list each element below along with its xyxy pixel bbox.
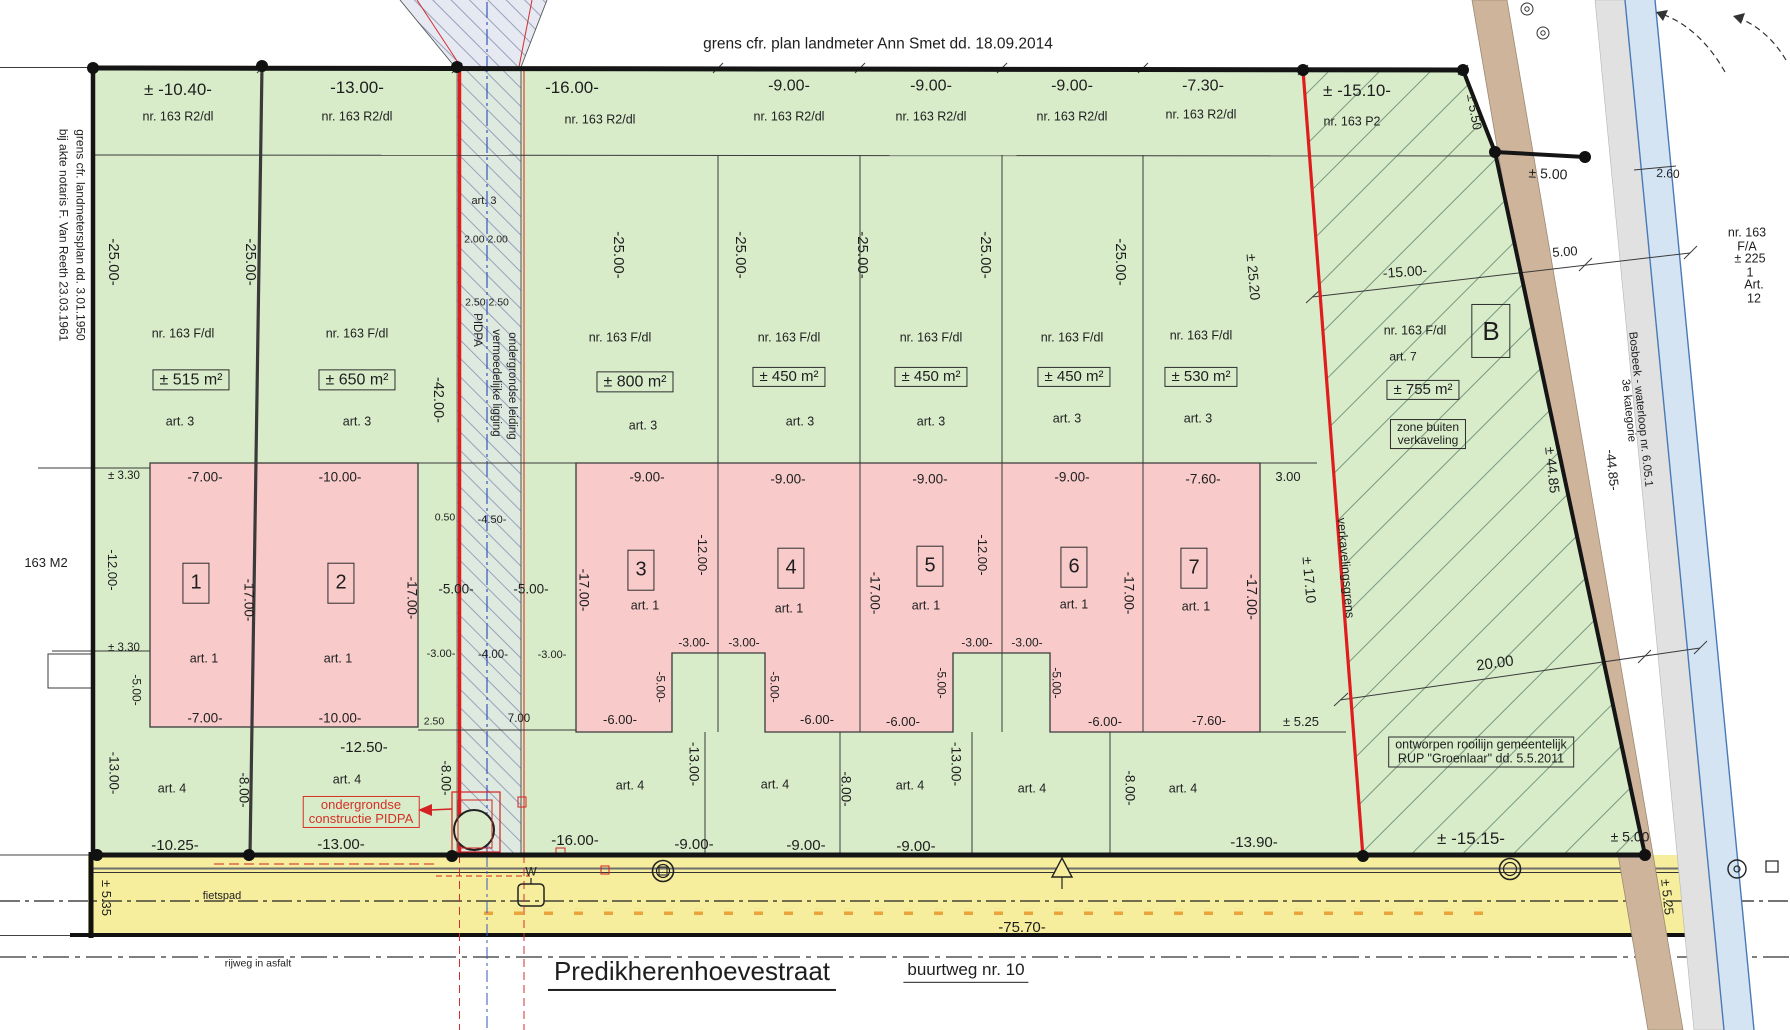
dim: -6.00-: [800, 713, 834, 727]
zone-label: art. 3: [629, 419, 658, 433]
zone-label: art. 1: [631, 599, 660, 613]
dim: -12.00-: [975, 534, 989, 575]
dim: -8.00-: [236, 772, 251, 807]
pipeline-label: PIDPA: [471, 313, 483, 347]
lot-number-7: 7: [1180, 548, 1207, 589]
dim-depth: ± 25.20: [1243, 253, 1262, 301]
parcel-label: nr. 163 R2/dl: [1166, 108, 1237, 122]
dim-depth: -25.00-: [977, 231, 993, 279]
water-valve-label: W: [525, 866, 536, 879]
dim: ± 5.50: [1464, 93, 1484, 131]
lot-number-2: 2: [327, 563, 354, 604]
dim: -13.00-: [106, 752, 121, 795]
dim: 2.50: [424, 716, 444, 727]
dim-depth: -25.00-: [854, 231, 870, 279]
pidpa-construction-note: ondergrondse constructie PIDPA: [303, 796, 420, 828]
road-surface-label: rijweg in asfalt: [225, 958, 292, 969]
parcel-label: nr. 163 F/dl: [758, 331, 821, 345]
dim-build-lot6: -9.00-: [1054, 471, 1089, 486]
zone-label: art. 7: [1389, 351, 1416, 364]
plan-canvas: grens cfr. plan landmeter Ann Smet dd. 1…: [0, 0, 1790, 1030]
dim: -9.00-: [674, 837, 713, 853]
dim: -12.50-: [340, 740, 388, 756]
zone-label: art. 4: [1169, 782, 1198, 796]
parcel-label: nr. 163 F/dl: [1170, 329, 1233, 343]
parcel-label: nr. 163 R2/dl: [896, 110, 967, 124]
dim: -13.00-: [317, 837, 365, 853]
dim: -3.00-: [538, 650, 567, 662]
zone-label: art. 1: [324, 652, 353, 666]
dim: -13.00-: [948, 742, 963, 786]
dim: -13.00-: [686, 742, 701, 786]
parcel-label: nr. 163 R2/dl: [565, 113, 636, 127]
parcel-label: nr. 163 F/dl: [900, 331, 963, 345]
parcel-label: nr. 163 F/dl: [152, 327, 215, 341]
dim-front-lot1: ± -10.40-: [144, 81, 212, 99]
dim-depth: -25.00-: [105, 238, 121, 286]
dim-front-p2: ± -15.10-: [1323, 82, 1391, 100]
parcel-label: nr. 163 F/A: [1726, 227, 1769, 254]
lot-number-b: B: [1471, 304, 1510, 358]
dim: 20.00: [1475, 653, 1514, 674]
dim-build-lot2: -10.00-: [319, 471, 362, 486]
dim: 3.00: [1275, 470, 1300, 484]
dim: ± 5.25: [1658, 878, 1676, 915]
area-lot6: ± 450 m²: [1037, 367, 1110, 387]
zone-label: art. 4: [158, 782, 187, 796]
dim: -17.00-: [576, 569, 591, 612]
dim: -3.00-: [678, 637, 709, 650]
zone-label: art. 3: [471, 196, 496, 208]
bike-path-label: fietspad: [203, 891, 242, 903]
dim-build-lot5: -9.00-: [912, 473, 947, 488]
dim-front-lot2: -13.00-: [330, 79, 384, 97]
dim: -5.00-: [1050, 667, 1063, 698]
dim-road-length: -75.70-: [998, 920, 1046, 936]
dim: -3.00-: [427, 649, 456, 661]
street-byway: buurtweg nr. 10: [903, 961, 1028, 983]
dim: ± 44.85: [1542, 446, 1562, 494]
labels-layer: grens cfr. plan landmeter Ann Smet dd. 1…: [0, 0, 1790, 1030]
dim-build-lot3: -9.00-: [629, 471, 664, 486]
zone-label: Art. 12: [1736, 279, 1772, 306]
dim: -17.00-: [1242, 574, 1258, 620]
lot-number-6: 6: [1060, 547, 1087, 588]
dim: -5.00-: [935, 667, 948, 698]
parcel-label: nr. 163 F/dl: [589, 331, 652, 345]
dim: -5.00-: [513, 583, 548, 598]
lot-number-1: 1: [182, 563, 209, 604]
dim: -7.00-: [187, 712, 222, 727]
zone-label: art. 1: [190, 652, 219, 666]
dim: 7.00: [508, 713, 530, 725]
dim: ± 3.30: [108, 642, 140, 654]
boundary-note-left: grens cfr. landmetersplan dd. 3.01.1950: [74, 129, 87, 340]
dim: ± 5.25: [1283, 715, 1319, 729]
dim: ± -15.15-: [1437, 830, 1505, 848]
dim: ± 3.30: [108, 470, 140, 482]
dim: 2.00 2.00: [464, 234, 508, 245]
dim: -6.00-: [1088, 715, 1122, 729]
zone-label: art. 3: [786, 415, 815, 429]
dim: -6.00-: [886, 715, 920, 729]
dim: -17.00-: [867, 572, 882, 615]
parcel-label: nr. 163 R2/dl: [143, 110, 214, 124]
dim-build-lot1: -7.00-: [187, 471, 222, 486]
parcel-label-neighbour: 163 M2: [24, 556, 67, 570]
street-name: Predikherenhoevestraat: [548, 957, 836, 991]
zone-outside-note: zone buiten verkaveling: [1390, 419, 1466, 449]
rooilijn-note: ontworpen rooilijn gemeentelijk RUP "Gro…: [1388, 737, 1574, 768]
dim: -9.00-: [896, 839, 935, 855]
dim: -8.00-: [838, 771, 853, 806]
parcel-label: nr. 163 R2/dl: [1037, 110, 1108, 124]
subdivision-boundary-label: verkavelingsgrens: [1334, 517, 1356, 619]
zone-label: art. 4: [333, 773, 362, 787]
area-label: ± 225 1: [1730, 253, 1770, 280]
dim-depth: -25.00-: [610, 231, 626, 279]
dim: -10.00-: [319, 712, 362, 727]
zone-label: art. 3: [1053, 412, 1082, 426]
zone-label: art. 1: [912, 599, 941, 613]
dim: ± 17.10: [1299, 556, 1318, 604]
pipeline-label: vermoedelijke ligging: [490, 329, 502, 436]
area-lot1: ± 515 m²: [152, 369, 229, 390]
dim: -4.50-: [478, 515, 507, 527]
dim-depth: -25.00-: [242, 238, 258, 286]
dim-build-lot4: -9.00-: [770, 473, 805, 488]
dim: -3.00-: [728, 637, 759, 650]
dim: -3.00-: [1011, 637, 1042, 650]
zone-label: art. 1: [1060, 598, 1089, 612]
zone-label: art. 3: [343, 415, 372, 429]
dim: -7.60-: [1192, 714, 1226, 728]
parcel-label: nr. 163 P2: [1324, 115, 1381, 129]
area-lot2: ± 650 m²: [318, 369, 395, 390]
lot-number-4: 4: [777, 548, 804, 589]
area-lot4: ± 450 m²: [752, 367, 825, 387]
dim: -17.00-: [404, 577, 419, 620]
dim-front-lot3: -16.00-: [545, 79, 599, 97]
area-lot-b: ± 755 m²: [1386, 380, 1459, 400]
dim-depth: -25.00-: [1112, 238, 1128, 286]
dim-front-lot5: -9.00-: [910, 77, 952, 94]
dim: -3.00-: [961, 637, 992, 650]
dim: 0.50: [435, 512, 455, 523]
dim: -13.90-: [1230, 835, 1278, 851]
dim: -8.00-: [1122, 770, 1137, 805]
dim: -8.00-: [438, 760, 453, 795]
dim-front-lot6: -9.00-: [1051, 77, 1093, 94]
parcel-label: nr. 163 R2/dl: [322, 110, 393, 124]
dim: 2.50 2.50: [465, 297, 509, 308]
lot-number-5: 5: [916, 546, 943, 587]
dim: -5.00-: [768, 671, 781, 702]
dim-depth: -25.00-: [732, 231, 748, 279]
area-lot5: ± 450 m²: [894, 367, 967, 387]
dim: -16.00-: [551, 833, 599, 849]
zone-label: art. 3: [917, 415, 946, 429]
zone-label: art. 4: [1018, 782, 1047, 796]
parcel-label: nr. 163 F/dl: [1384, 324, 1447, 338]
parcel-label: nr. 163 R2/dl: [754, 110, 825, 124]
dim: -5.00-: [438, 583, 473, 598]
area-lot3: ± 800 m²: [596, 371, 673, 392]
zone-label: art. 1: [1182, 600, 1211, 614]
zone-label: art. 3: [1184, 412, 1213, 426]
dim: -17.00-: [1121, 572, 1136, 615]
dim: -5.00-: [654, 671, 667, 702]
dim-front-lot7: -7.30-: [1182, 77, 1224, 94]
dim: ± 5.35: [99, 880, 113, 916]
parcel-label: nr. 163 F/dl: [326, 327, 389, 341]
dim: -44.85-: [1603, 449, 1621, 491]
zone-label: art. 4: [896, 779, 925, 793]
dim: 2.60: [1656, 167, 1680, 181]
lot-number-3: 3: [627, 550, 654, 591]
area-lot7: ± 530 m²: [1164, 367, 1237, 387]
boundary-note-left: bij akte notaris F. Van Reeth 23.03.1961: [57, 129, 70, 342]
parcel-label: nr. 163 F/dl: [1041, 331, 1104, 345]
dim: -9.00-: [786, 838, 825, 854]
zone-label: art. 3: [166, 415, 195, 429]
dim: -12.00-: [695, 534, 709, 575]
dim: -10.25-: [151, 838, 199, 854]
zone-label: art. 4: [761, 778, 790, 792]
dim: -12.00-: [105, 549, 119, 590]
dim: ± 5.00: [1611, 829, 1650, 844]
dim: -15.00-: [1382, 263, 1427, 281]
dim: -5.00-: [130, 674, 143, 705]
zone-label: art. 4: [616, 779, 645, 793]
pipeline-label: ondergrondse leiding: [506, 332, 518, 439]
dim: 5.00: [1552, 244, 1578, 260]
dim: -6.00-: [603, 713, 637, 727]
dim-front-lot4: -9.00-: [768, 77, 810, 94]
dim: ± 5.00: [1528, 165, 1568, 182]
dim: -17.00-: [241, 579, 256, 622]
dim: -4.00-: [478, 649, 508, 661]
zone-label: art. 1: [775, 602, 804, 616]
boundary-note-top: grens cfr. plan landmeter Ann Smet dd. 1…: [703, 37, 1053, 54]
dim: -42.00-: [429, 377, 445, 423]
dim-build-lot7: -7.60-: [1185, 473, 1220, 488]
